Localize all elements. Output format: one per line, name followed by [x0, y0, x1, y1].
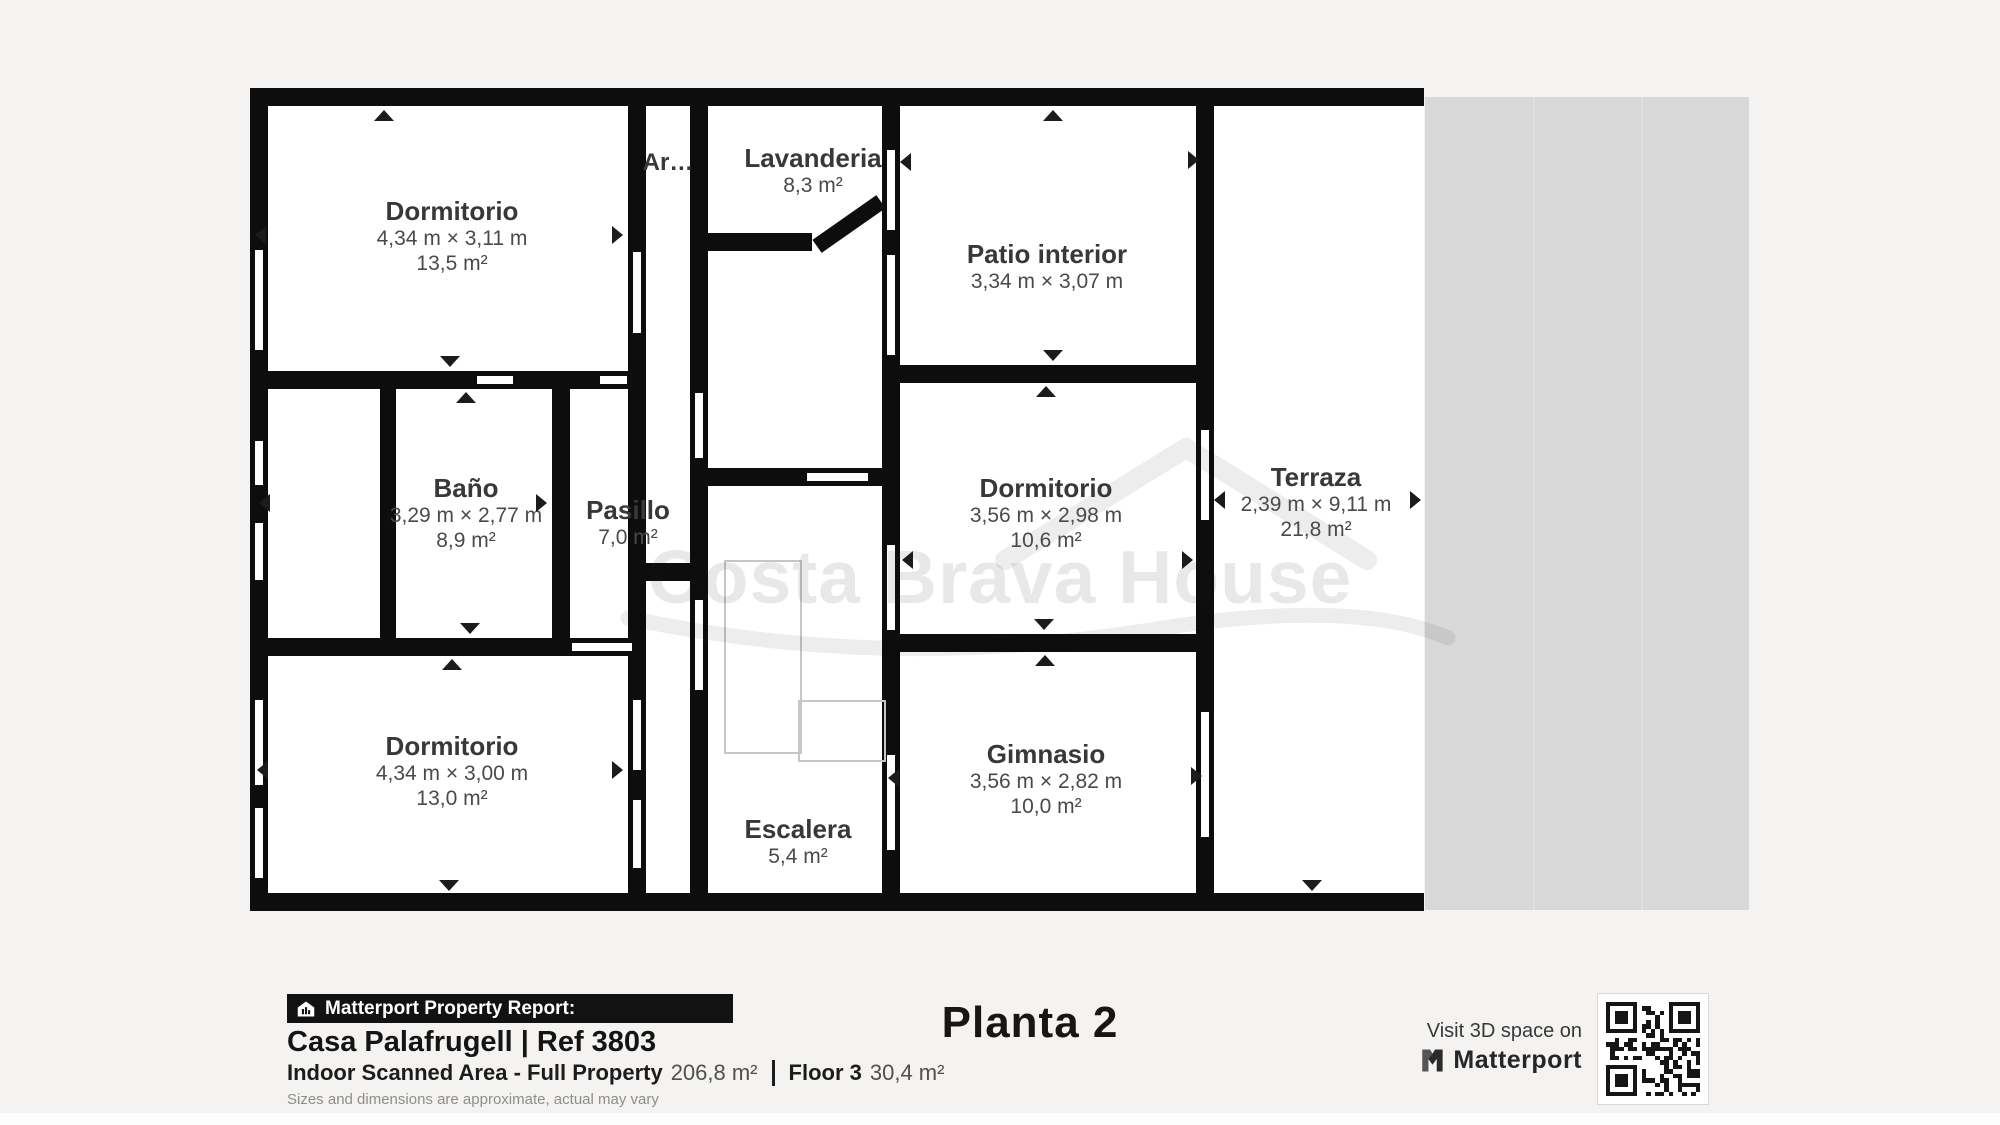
plan-title: Planta 2: [895, 998, 1165, 1048]
door-marker-left-icon: [902, 551, 913, 569]
window-slot: [1201, 712, 1209, 837]
door-marker-left-icon: [259, 494, 270, 512]
door-marker-right-icon: [1191, 767, 1202, 785]
window-slot: [477, 376, 513, 384]
window-slot: [695, 600, 703, 690]
matterport-logo-icon: [1419, 1047, 1446, 1074]
report-badge-label: Matterport Property Report:: [325, 998, 575, 1020]
door-marker-up-icon: [1043, 110, 1063, 121]
wall: [380, 389, 396, 656]
wall: [552, 383, 570, 656]
matterport-brand: Matterport: [1400, 1046, 1582, 1075]
window-slot: [887, 150, 895, 230]
window-slot: [887, 545, 895, 630]
door-marker-left-icon: [1214, 491, 1225, 509]
window-slot: [600, 376, 627, 384]
floor-plan: [250, 88, 1424, 911]
matterport-brand-label: Matterport: [1453, 1046, 1582, 1075]
window-slot: [633, 800, 641, 868]
door-marker-right-icon: [536, 494, 547, 512]
door-marker-up-icon: [374, 110, 394, 121]
page-bottom-strip: [0, 1113, 2000, 1125]
door-marker-right-icon: [1188, 151, 1199, 169]
exterior-gray-area: [1425, 97, 1749, 910]
door-marker-up-icon: [1036, 386, 1056, 397]
wall: [628, 563, 708, 581]
door-marker-up-icon: [456, 392, 476, 403]
door-marker-left-icon: [900, 153, 911, 171]
visit-3d-block: Visit 3D space on Matterport: [1400, 1020, 1582, 1075]
wall: [250, 893, 1424, 911]
window-slot: [807, 473, 868, 481]
door-marker-down-icon: [1034, 619, 1054, 630]
door-marker-left-icon: [888, 769, 899, 787]
window-slot: [572, 643, 632, 651]
door-marker-left-icon: [255, 226, 266, 244]
floor-label: Floor 3: [789, 1060, 862, 1086]
door-marker-right-icon: [1182, 551, 1193, 569]
indoor-area-value: 206,8 m²: [671, 1060, 758, 1086]
door-marker-right-icon: [612, 761, 623, 779]
wall: [690, 88, 708, 893]
door-marker-right-icon: [1410, 491, 1421, 509]
door-marker-down-icon: [440, 356, 460, 367]
wall: [628, 88, 646, 893]
divider: [772, 1060, 775, 1086]
window-slot: [255, 441, 263, 485]
door-marker-down-icon: [439, 880, 459, 891]
door-marker-down-icon: [1043, 350, 1063, 361]
window-slot: [255, 523, 263, 580]
indoor-area-label: Indoor Scanned Area - Full Property: [287, 1060, 663, 1086]
qr-code: [1606, 1002, 1700, 1096]
wall: [812, 195, 885, 253]
window-slot: [255, 250, 263, 350]
door-marker-down-icon: [460, 623, 480, 634]
area-info: Indoor Scanned Area - Full Property 206,…: [287, 1060, 944, 1086]
floor-area-value: 30,4 m²: [870, 1060, 945, 1086]
door-marker-down-icon: [1302, 880, 1322, 891]
wall: [690, 233, 812, 251]
disclaimer-text: Sizes and dimensions are approximate, ac…: [287, 1091, 659, 1108]
stair-outline: [724, 560, 802, 754]
house-chart-icon: [297, 1000, 315, 1018]
window-slot: [887, 255, 895, 355]
property-title: Casa Palafrugell | Ref 3803: [287, 1026, 656, 1059]
visit-3d-text: Visit 3D space on: [1400, 1020, 1582, 1043]
matterport-report-badge: Matterport Property Report:: [287, 994, 733, 1023]
door-marker-left-icon: [257, 761, 268, 779]
qr-module: [1696, 1092, 1700, 1096]
window-slot: [1201, 430, 1209, 520]
window-slot: [695, 393, 703, 458]
wall: [250, 88, 1424, 106]
wall: [250, 371, 646, 389]
window-slot: [633, 252, 641, 333]
door-marker-up-icon: [442, 659, 462, 670]
window-slot: [255, 808, 263, 878]
door-marker-up-icon: [1035, 655, 1055, 666]
wall: [900, 365, 1196, 383]
door-marker-right-icon: [612, 226, 623, 244]
window-slot: [633, 700, 641, 770]
stair-outline: [798, 700, 886, 762]
gray-seam: [1533, 97, 1535, 910]
qr-card: [1597, 993, 1709, 1105]
wall: [900, 634, 1196, 652]
gray-seam: [1641, 97, 1643, 910]
